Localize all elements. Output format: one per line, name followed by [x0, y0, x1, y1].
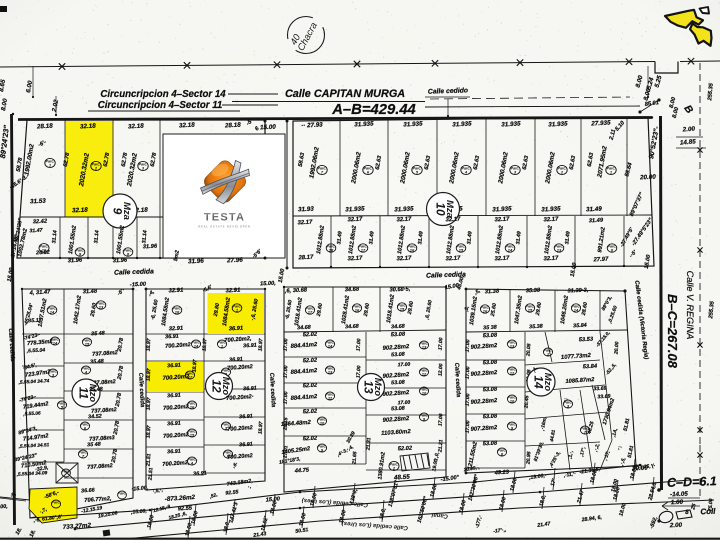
svg-text:16: 16: [483, 309, 488, 314]
svg-text:17.00: 17.00: [464, 420, 471, 433]
svg-text:14: 14: [194, 344, 199, 349]
svg-text:53.84: 53.84: [583, 364, 598, 371]
svg-text:18.97: 18.97: [145, 425, 152, 438]
svg-text:32.17: 32.17: [396, 256, 412, 263]
svg-text:32.18: 32.18: [128, 122, 145, 130]
svg-text:21.31: 21.31: [365, 437, 372, 451]
svg-text:‚5‚: ‚5‚: [463, 306, 470, 313]
svg-text:27.935: 27.935: [590, 119, 611, 127]
svg-text:31.935: 31.935: [501, 120, 521, 128]
svg-text:32.17: 32.17: [543, 217, 559, 224]
svg-text:14.85: 14.85: [680, 138, 697, 146]
svg-text:17: 17: [361, 248, 366, 253]
svg-text:17.00: 17.00: [437, 413, 444, 426]
svg-text:31.49: 31.49: [368, 231, 375, 245]
svg-text:32.18: 32.18: [80, 122, 97, 130]
svg-text:92.55: 92.55: [225, 489, 239, 496]
svg-text:32.17: 32.17: [445, 256, 461, 263]
svg-text:33.69: 33.69: [597, 394, 610, 401]
svg-text:·· 27.93: ·· 27.93: [301, 121, 323, 129]
svg-text:31.39·3‚: 31.39·3‚: [567, 287, 589, 294]
svg-text:31.935: 31.935: [492, 205, 512, 213]
svg-text:10: 10: [422, 391, 427, 396]
svg-text:31.48: 31.48: [83, 289, 98, 296]
svg-text:35.38: 35.38: [529, 324, 544, 331]
svg-text:13: 13: [99, 305, 104, 310]
svg-text:15.00‚: 15.00‚: [260, 281, 277, 288]
svg-text:31.935: 31.935: [548, 120, 568, 128]
svg-text:18.97: 18.97: [257, 421, 264, 434]
svg-text:27.97: 27.97: [592, 257, 609, 264]
svg-text:21.21: 21.21: [437, 439, 444, 453]
svg-text:35.17: 35.17: [28, 318, 43, 325]
svg-text:17.00: 17.00: [282, 391, 289, 404]
svg-text:15: 15: [190, 433, 195, 438]
svg-text:21.51: 21.51: [145, 453, 152, 467]
svg-text:53.08: 53.08: [483, 387, 498, 394]
svg-text:‚5.55.04: ‚5.55.04: [26, 348, 46, 355]
svg-text:35.48: 35.48: [90, 359, 105, 366]
svg-text:31.935: 31.935: [541, 205, 561, 213]
svg-text:21.65: 21.65: [351, 451, 358, 465]
svg-text:34.68: 34.68: [297, 325, 312, 332]
svg-text:12.00: 12.00: [437, 363, 444, 376]
svg-text:15: 15: [85, 342, 90, 347]
svg-text:9: 9: [111, 208, 125, 215]
svg-text:32.17: 32.17: [445, 217, 461, 224]
svg-text:36.66: 36.66: [81, 487, 96, 494]
svg-text:36.91: 36.91: [229, 326, 244, 333]
svg-text:31.49: 31.49: [586, 206, 603, 214]
svg-text:31.49: 31.49: [564, 231, 571, 245]
svg-text:18: 18: [329, 248, 334, 253]
svg-text:31.49: 31.49: [466, 231, 473, 245]
svg-text:31.93: 31.93: [298, 206, 315, 214]
svg-text:31.935: 31.935: [403, 120, 423, 128]
svg-text:34.68: 34.68: [391, 324, 406, 331]
svg-text:27.96: 27.96: [226, 257, 244, 265]
svg-text:17.00: 17.00: [398, 362, 411, 369]
svg-text:15: 15: [528, 308, 533, 313]
svg-text:14: 14: [574, 308, 579, 313]
svg-text:Parc.: Parc.: [62, 469, 71, 473]
svg-text:17.00: 17.00: [437, 337, 444, 350]
svg-text:49.23: 49.23: [494, 469, 510, 476]
svg-text:52.02: 52.02: [303, 332, 318, 339]
svg-text:16: 16: [410, 248, 415, 253]
svg-text:44.75: 44.75: [294, 467, 310, 474]
svg-text:31.96: 31.96: [188, 258, 205, 266]
svg-text:15: 15: [459, 248, 464, 253]
svg-text:‚5.55.06: ‚5.55.06: [22, 411, 41, 418]
svg-text:17: 17: [188, 375, 193, 380]
svg-text:17.00: 17.00: [355, 338, 362, 351]
svg-text:13: 13: [557, 248, 562, 253]
svg-text:Circuncripcion 4–Sector 14: Circuncripcion 4–Sector 14: [100, 89, 226, 100]
svg-text:TESTA: TESTA: [204, 212, 245, 224]
svg-text:32.17: 32.17: [543, 256, 559, 263]
svg-text:Calle cedido: Calle cedido: [428, 87, 468, 95]
svg-text:36.91: 36.91: [229, 357, 243, 364]
svg-text:14: 14: [328, 344, 333, 349]
svg-text:35 48: 35 48: [91, 331, 106, 338]
svg-text:17.00: 17.00: [464, 393, 471, 406]
svg-text:34.68: 34.68: [345, 324, 360, 331]
svg-text:15.00: 15.00: [260, 124, 277, 132]
svg-text:28.17: 28.17: [297, 255, 314, 262]
svg-text:15: 15: [400, 307, 405, 312]
svg-text:31.47: 31.47: [29, 228, 43, 235]
svg-text:12: 12: [422, 372, 427, 377]
svg-text:36.91: 36.91: [165, 334, 179, 341]
svg-text:53.08: 53.08: [391, 332, 406, 339]
svg-text:21.51: 21.51: [147, 467, 154, 481]
svg-text:53.53: 53.53: [579, 337, 594, 344]
svg-text:18.97: 18.97: [145, 368, 152, 381]
svg-text:36.91: 36.91: [167, 421, 181, 428]
svg-text:‚6‚ 30.68: ‚6‚ 30.68: [284, 287, 308, 294]
svg-text:35.38: 35.38: [526, 288, 541, 295]
svg-text:34.52: 34.52: [88, 414, 102, 421]
svg-text:53.08: 53.08: [483, 441, 498, 448]
svg-text:20.45: 20.45: [523, 395, 530, 409]
svg-text:31.49: 31.49: [336, 231, 343, 245]
svg-text:16: 16: [355, 308, 360, 313]
svg-text:32.91: 32.91: [225, 288, 240, 295]
svg-text:75.00: 75.00: [707, 498, 714, 511]
svg-text:36.91: 36.91: [193, 471, 207, 478]
svg-text:52.02: 52.02: [303, 436, 318, 443]
svg-text:31.935: 31.935: [452, 120, 472, 128]
svg-text:20.08: 20.08: [525, 343, 532, 357]
svg-text:14: 14: [508, 248, 513, 253]
svg-text:14: 14: [532, 375, 546, 389]
svg-text:31.935: 31.935: [345, 205, 365, 213]
svg-text:52.02: 52.02: [303, 383, 318, 390]
svg-text:REAL ESTATE DEVELOPER: REAL ESTATE DEVELOPER: [198, 225, 250, 229]
svg-text:28.18: 28.18: [224, 121, 242, 129]
svg-text:20.00: 20.00: [639, 174, 657, 182]
svg-text:31.49: 31.49: [417, 231, 424, 245]
svg-text:18.97: 18.97: [201, 338, 208, 351]
svg-text:17.00: 17.00: [282, 338, 289, 351]
svg-text:10: 10: [320, 421, 325, 426]
svg-text:17.00: 17.00: [464, 366, 471, 379]
svg-text:36.91: 36.91: [243, 386, 257, 393]
svg-text:-14.05: -14.05: [670, 491, 689, 499]
svg-text:26.02: 26.02: [35, 250, 50, 257]
svg-text:17.00: 17.00: [282, 365, 289, 378]
svg-text:Parc.: Parc.: [118, 491, 127, 495]
svg-text:20.00: 20.00: [613, 341, 620, 355]
svg-text:53.08: 53.08: [483, 333, 498, 340]
svg-text:36.91: 36.91: [167, 363, 181, 370]
svg-text:53.08: 53.08: [391, 406, 406, 413]
svg-text:B–C=267.08: B–C=267.08: [665, 294, 680, 369]
svg-text:14: 14: [50, 310, 55, 315]
svg-text:28.18: 28.18: [36, 122, 54, 130]
svg-text:18.97: 18.97: [145, 338, 152, 351]
svg-text:35.48: 35.48: [89, 387, 104, 394]
svg-text:16: 16: [190, 405, 195, 410]
svg-text:18.97: 18.97: [145, 397, 152, 410]
svg-text:53.08: 53.08: [483, 414, 498, 421]
svg-text:30.68·5‚: 30.68·5‚: [389, 286, 411, 293]
svg-text:31.96: 31.96: [113, 258, 128, 265]
svg-text:18.97: 18.97: [257, 338, 264, 351]
svg-text:52.02: 52.02: [303, 358, 318, 365]
svg-text:C–D=6.1: C–D=6.1: [667, 474, 717, 490]
svg-text:18: 18: [175, 310, 180, 315]
svg-text:32.91: 32.91: [168, 288, 183, 295]
svg-text:31.49: 31.49: [589, 218, 604, 225]
svg-text:2.00: 2.00: [681, 125, 695, 133]
svg-text:2.00: 2.00: [669, 522, 683, 529]
svg-text:32.17: 32.17: [347, 217, 363, 224]
svg-text:31.96: 31.96: [68, 258, 83, 265]
svg-text:Circuncripcion 4–Sector 11: Circuncripcion 4–Sector 11: [98, 100, 223, 111]
svg-text:53.08: 53.08: [391, 380, 406, 387]
svg-text:17.00: 17.00: [355, 365, 362, 378]
svg-text:31.935: 31.935: [394, 205, 414, 213]
svg-text:34.68: 34.68: [345, 287, 360, 294]
svg-text:32.91: 32.91: [169, 326, 184, 333]
svg-text:36.91: 36.91: [239, 442, 253, 449]
svg-text:31.96: 31.96: [143, 244, 158, 251]
svg-text:31.53: 31.53: [30, 198, 47, 206]
svg-text:10: 10: [510, 399, 515, 404]
svg-text:36.91: 36.91: [167, 449, 181, 456]
svg-text:32.17: 32.17: [297, 220, 313, 227]
svg-text:31.14: 31.14: [141, 230, 148, 244]
svg-text:13: 13: [362, 380, 376, 394]
svg-text:Parc.: Parc.: [52, 500, 61, 504]
svg-text:4‚ 31.47: 4‚ 31.47: [29, 289, 52, 296]
svg-text:52.02: 52.02: [398, 446, 413, 453]
svg-text:12: 12: [210, 379, 224, 393]
svg-text:31.38: 31.38: [485, 289, 500, 296]
svg-text:Calle CAPITAN MURGA: Calle CAPITAN MURGA: [285, 88, 405, 100]
svg-text:28.15: 28.15: [282, 417, 289, 431]
svg-text:12: 12: [510, 371, 515, 376]
svg-text:32.18: 32.18: [72, 207, 89, 215]
svg-text:31.14: 31.14: [51, 230, 58, 244]
svg-text:00‚: 00‚: [0, 504, 8, 510]
svg-text:36.91: 36.91: [167, 393, 181, 400]
svg-text:13: 13: [422, 345, 427, 350]
svg-text:Calle cedida: Calle cedida: [114, 268, 154, 276]
svg-text:A–B=429.44: A–B=429.44: [331, 102, 416, 118]
svg-text:32.17: 32.17: [347, 256, 363, 263]
svg-text:1.00: 1.00: [671, 499, 684, 506]
svg-text:52.02: 52.02: [303, 409, 318, 416]
svg-text:35 38: 35 38: [483, 325, 498, 332]
svg-text:13: 13: [328, 370, 333, 375]
svg-text:31.935: 31.935: [354, 120, 374, 128]
svg-text:36.91: 36.91: [239, 414, 253, 421]
svg-text:32.17: 32.17: [494, 217, 510, 224]
svg-text:14: 14: [53, 341, 58, 346]
svg-text:35 48: 35 48: [87, 442, 102, 449]
svg-text:32.42: 32.42: [33, 219, 48, 226]
svg-text:13: 13: [510, 344, 515, 349]
svg-text:31.14: 31.14: [93, 230, 100, 244]
svg-text:36.91: 36.91: [243, 343, 257, 350]
svg-text:32.17: 32.17: [494, 256, 510, 263]
svg-text:33.69: 33.69: [593, 386, 606, 393]
svg-text:31.49: 31.49: [515, 231, 522, 245]
svg-text:53.08: 53.08: [483, 360, 498, 367]
svg-text:17.00: 17.00: [464, 339, 471, 352]
svg-text:17: 17: [308, 310, 313, 315]
svg-text:32.18: 32.18: [179, 121, 196, 129]
svg-text:32.17: 32.17: [396, 217, 412, 224]
svg-text:20.95: 20.95: [525, 451, 532, 465]
svg-text:10: 10: [434, 202, 448, 216]
svg-text:-15.00: -15.00: [130, 282, 147, 289]
svg-text:53.08: 53.08: [391, 352, 406, 359]
svg-text:Calle V. REGINA: Calle V. REGINA: [685, 271, 695, 340]
svg-text:35.84: 35.84: [573, 323, 587, 330]
